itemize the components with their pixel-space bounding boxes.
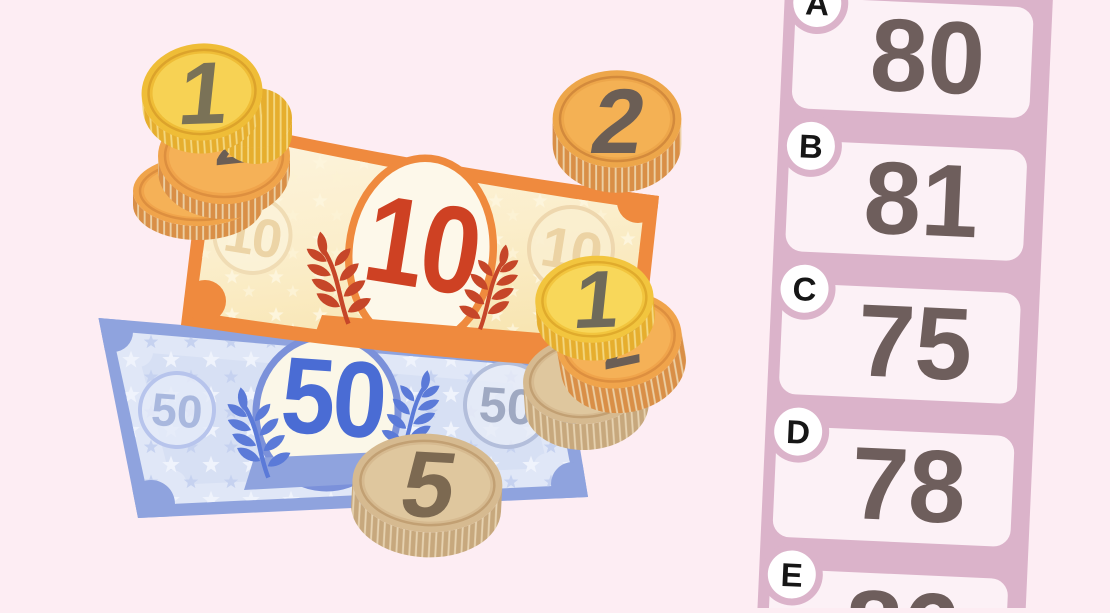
svg-text:75: 75	[855, 282, 975, 402]
svg-text:50: 50	[150, 383, 205, 438]
svg-text:86: 86	[842, 568, 962, 608]
svg-text:B: B	[798, 127, 823, 165]
svg-text:78: 78	[849, 425, 969, 545]
svg-text:C: C	[792, 270, 817, 308]
svg-text:80: 80	[868, 0, 988, 117]
svg-text:A: A	[805, 0, 830, 22]
svg-text:E: E	[780, 556, 804, 594]
svg-text:10: 10	[356, 167, 488, 322]
svg-text:50: 50	[277, 334, 388, 462]
svg-text:D: D	[785, 413, 810, 451]
svg-text:81: 81	[862, 139, 982, 259]
